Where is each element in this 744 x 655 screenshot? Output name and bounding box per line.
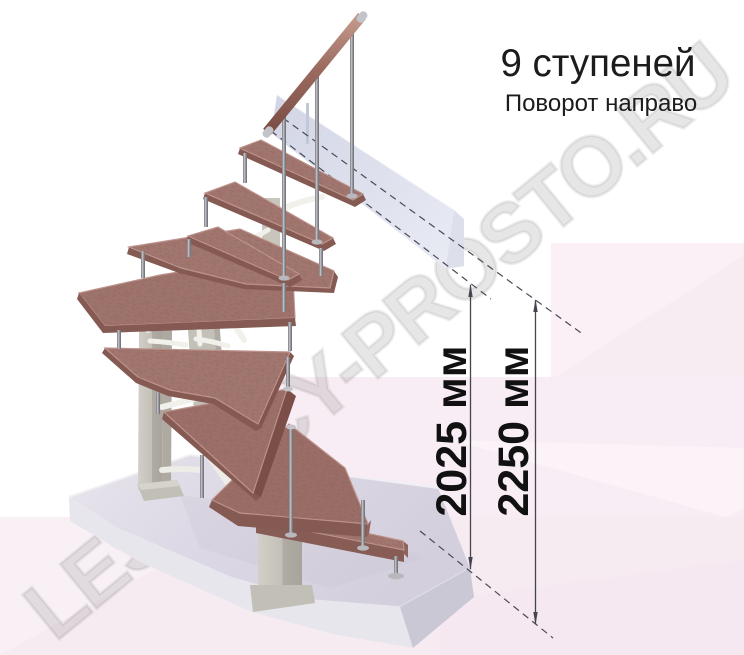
svg-text:9 ступеней: 9 ступеней: [500, 42, 695, 85]
svg-text:2025 мм: 2025 мм: [428, 345, 476, 516]
svg-text:2250 мм: 2250 мм: [490, 345, 538, 516]
svg-text:Поворот направо: Поворот направо: [505, 90, 697, 117]
